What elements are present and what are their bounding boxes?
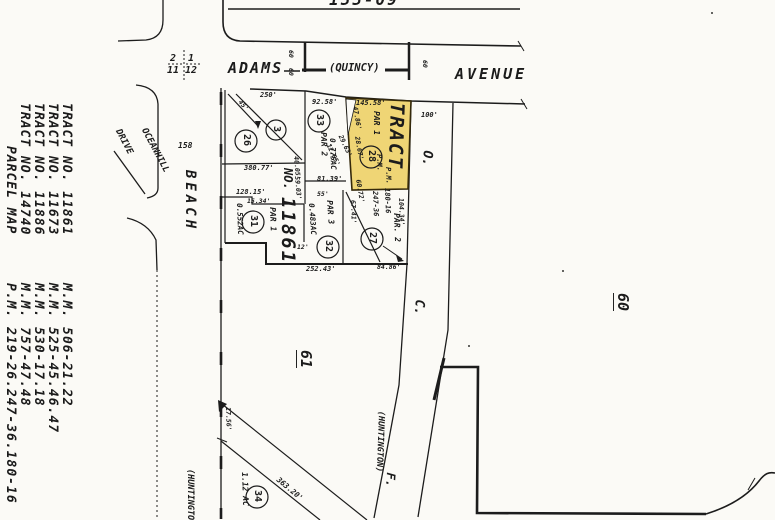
margin-tract-11673: TRACT NO. 11673 — [46, 103, 59, 235]
road-width-60-a: 60 — [288, 50, 295, 58]
dim-250: 250' — [260, 92, 277, 99]
dim-100: 100' — [421, 112, 438, 119]
margin-tract-14740: TRACT NO. 14740 — [18, 103, 31, 235]
dim-128-15: 128.15' — [236, 189, 266, 196]
boundary-curve — [706, 473, 775, 514]
tract-no-label: NO. — [282, 168, 294, 190]
highlight-pm2: P.M. — [384, 167, 392, 184]
dim-59-03: 59.03' — [294, 176, 303, 200]
parcel34-lines — [217, 400, 367, 520]
parcel-number-31: 31 — [248, 215, 258, 227]
parcel27-arrowhead — [396, 255, 404, 262]
parcel32-area: 0.483AC — [308, 203, 318, 235]
street-label-huntington: (HUNTINGTON) — [374, 411, 385, 473]
parcel-number-33: 33 — [314, 114, 324, 126]
dim-84-86: 84.86' — [377, 264, 400, 271]
parcel-number-32: 32 — [323, 240, 333, 252]
dim-12: 12' — [297, 244, 309, 251]
parcel-map-canvas: 155-09 TRACT NO. 11861 TRACT NO. 11673 T… — [0, 0, 775, 520]
dim-252-43: 252.43' — [306, 266, 336, 273]
highlight-par-label: PAR 1 — [372, 111, 380, 135]
street-label-beach: BEACH — [183, 170, 197, 232]
dim-92-58: 92.58' — [312, 99, 337, 106]
highlight-ref-247-36: 247-36 — [371, 191, 379, 217]
section-12: 12 — [185, 66, 197, 76]
highlight-pm1: P.M. — [375, 154, 383, 171]
road-width-60-c: 60 — [422, 60, 429, 68]
tract-number-11861: 11861 — [278, 197, 297, 264]
parcel34-area: 1.12 AC — [240, 472, 249, 506]
margin-parcel-map: PARCEL MAP — [4, 146, 17, 234]
dim-81-39: 81.39' — [317, 176, 342, 183]
parcel-number-34: 34 — [252, 490, 262, 502]
dim-55: 55' — [317, 191, 329, 198]
parcel-number-27: 27 — [367, 232, 377, 244]
highlight-tract-label: TRACT — [385, 102, 406, 170]
margin-tract-11886: TRACT NO. 11886 — [32, 103, 45, 235]
adjacent-sheet-61: 61 — [296, 350, 313, 368]
dim-380-77: 380.77' — [244, 165, 274, 172]
margin-ref-11673: M.M. 525-45.46.47 — [46, 283, 59, 433]
street-label-huntington-2: (HUNTINGTON) — [186, 469, 195, 520]
parcel-number-26: 26 — [241, 134, 251, 146]
tract-boundary — [440, 367, 706, 514]
section-1: 1 — [188, 54, 194, 64]
section-2: 2 — [170, 54, 176, 64]
dim-17-56: 17.56' — [225, 407, 232, 431]
parcel27-arrow — [383, 246, 402, 259]
dim-145-58: 145.58' — [356, 100, 386, 107]
parcel31-area: 0.552AC — [236, 203, 245, 235]
parcel-number-3: 3 — [271, 126, 281, 132]
street-label-quincy: (QUINCY) — [329, 63, 380, 74]
parcel32-par: PAR 3 — [325, 200, 335, 225]
wedge-tip — [255, 121, 261, 129]
dim-104-34: 104.34' — [398, 198, 405, 226]
margin-tract-11861: TRACT NO. 11861 — [60, 103, 73, 235]
margin-ref-11886: M.M. 530-17.18 — [32, 283, 45, 407]
section-11: 11 — [167, 66, 179, 76]
highlight-ref-180-16: 180-16 — [383, 188, 391, 214]
sheet-number: 155-09 — [329, 0, 399, 8]
margin-ref-14740: M.M. 757-47.48 — [18, 283, 31, 407]
map-linework — [0, 0, 775, 520]
dim-15-34: 15.34' — [247, 198, 270, 205]
margin-ref-parcel-map: P.M. 219-26.247-36.180-16 — [4, 283, 17, 504]
margin-ref-11861: M.M. 506-21.22 — [60, 283, 73, 407]
adjacent-sheet-158: 158 — [178, 142, 192, 150]
road-east-thick — [434, 358, 444, 400]
road-letter-c: C. — [412, 299, 426, 316]
tract-boundary-lines — [440, 367, 775, 514]
scan-noise-dots — [468, 12, 713, 347]
road-letter-f: F. — [384, 472, 397, 487]
street-label-adams: ADAMS — [228, 61, 283, 76]
oceanhill-south-flare — [127, 218, 157, 270]
road-width-60-b: 60 — [288, 68, 295, 76]
corner-curve-nw — [118, 0, 163, 41]
parcel31-par: PAR 1 — [268, 207, 277, 231]
dim-67-41: 67.41' — [350, 200, 357, 224]
oceanhill-drive-line — [114, 151, 145, 194]
parcel34-diag-2 — [221, 441, 320, 520]
street-label-avenue: AVENUE — [455, 67, 527, 82]
road-letter-o: O. — [420, 150, 434, 167]
adjacent-sheet-60: 60 — [613, 293, 630, 311]
